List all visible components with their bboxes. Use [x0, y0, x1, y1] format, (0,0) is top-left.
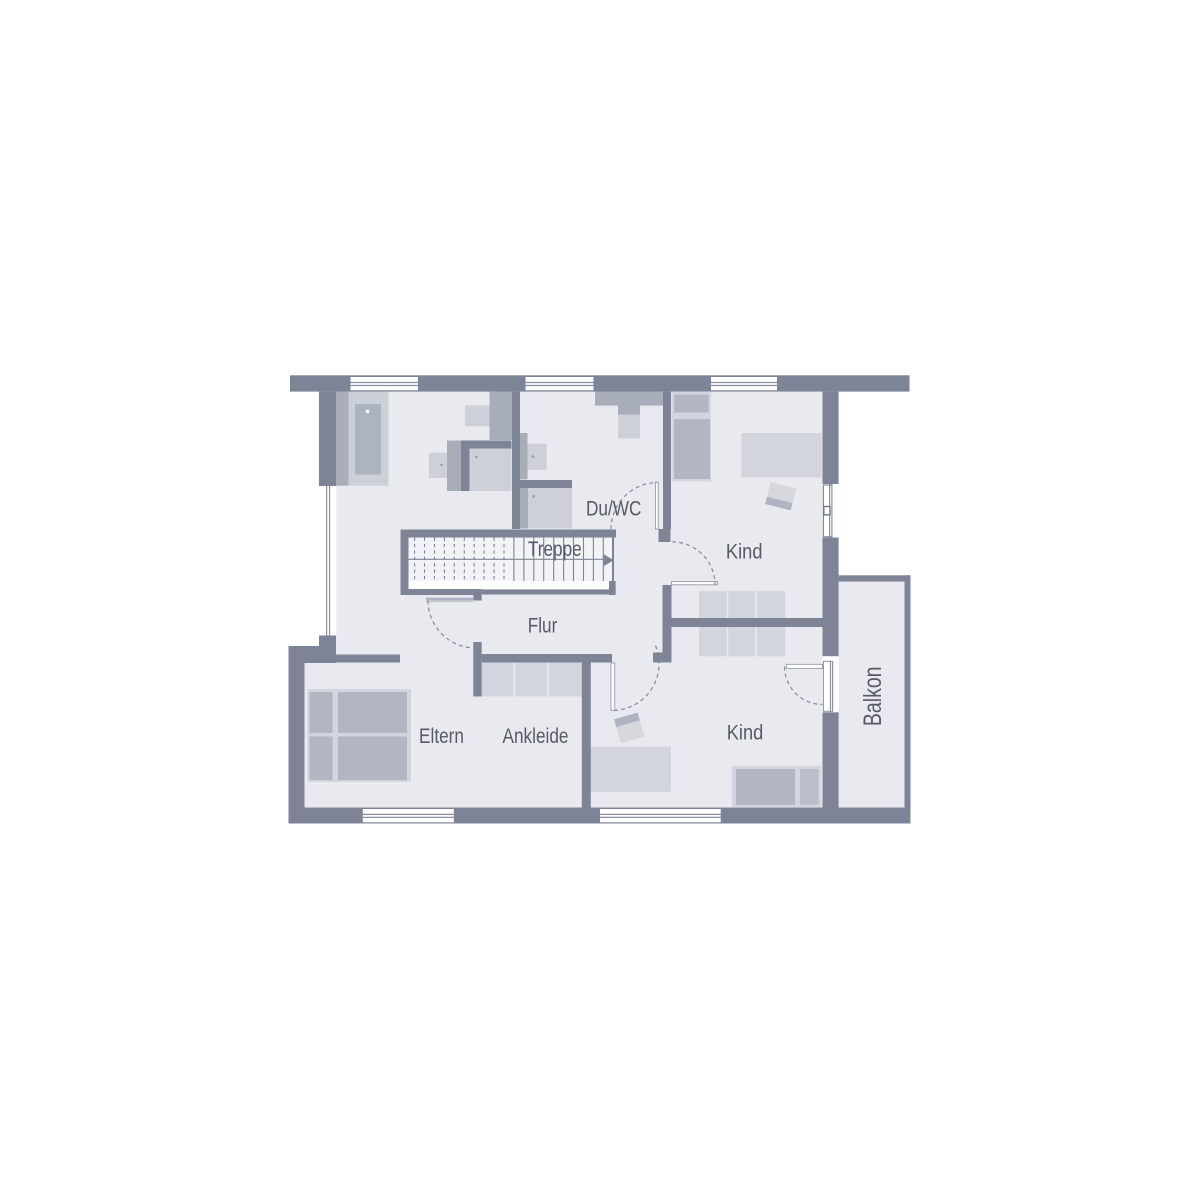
- svg-text:Balkon: Balkon: [859, 667, 887, 727]
- svg-text:Kind: Kind: [727, 721, 764, 745]
- svg-text:Flur: Flur: [528, 614, 558, 638]
- svg-text:Kind: Kind: [726, 540, 763, 564]
- svg-text:Du/WC: Du/WC: [586, 497, 641, 521]
- svg-text:Treppe: Treppe: [528, 537, 582, 561]
- svg-text:Eltern: Eltern: [419, 724, 464, 748]
- svg-text:Ankleide: Ankleide: [503, 724, 569, 748]
